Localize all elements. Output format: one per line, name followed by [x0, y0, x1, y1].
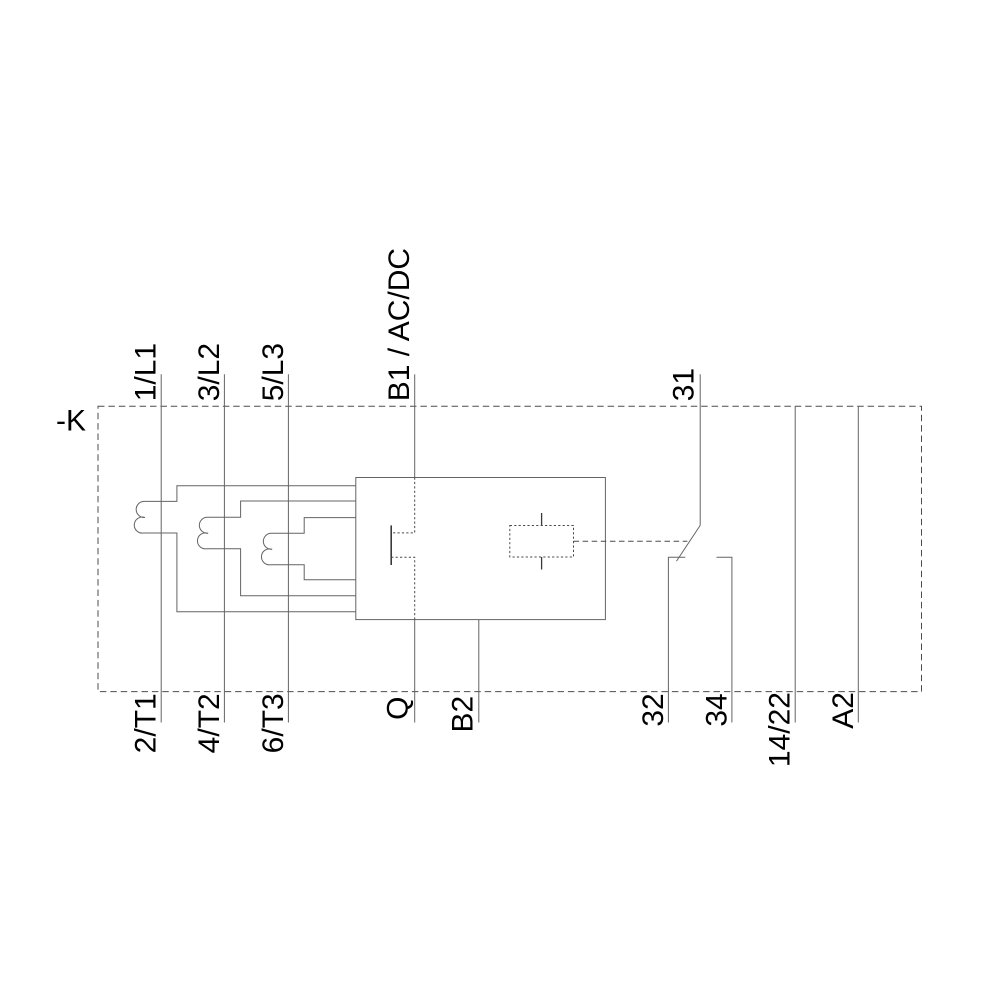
svg-text:2/T1: 2/T1	[130, 693, 163, 753]
svg-text:1/L1: 1/L1	[130, 343, 163, 401]
svg-text:3/L2: 3/L2	[193, 343, 226, 401]
svg-text:B1 / AC/DC: B1 / AC/DC	[383, 248, 416, 401]
svg-text:6/T3: 6/T3	[257, 693, 290, 753]
svg-text:14/22: 14/22	[764, 692, 797, 767]
svg-text:32: 32	[637, 693, 670, 726]
svg-text:-K: -K	[56, 405, 86, 438]
svg-text:5/L3: 5/L3	[257, 343, 290, 401]
svg-text:Q: Q	[381, 697, 414, 720]
svg-text:34: 34	[700, 693, 733, 726]
svg-text:B2: B2	[447, 696, 480, 733]
svg-text:4/T2: 4/T2	[193, 693, 226, 753]
svg-text:31: 31	[668, 368, 701, 401]
svg-text:A2: A2	[827, 692, 860, 729]
